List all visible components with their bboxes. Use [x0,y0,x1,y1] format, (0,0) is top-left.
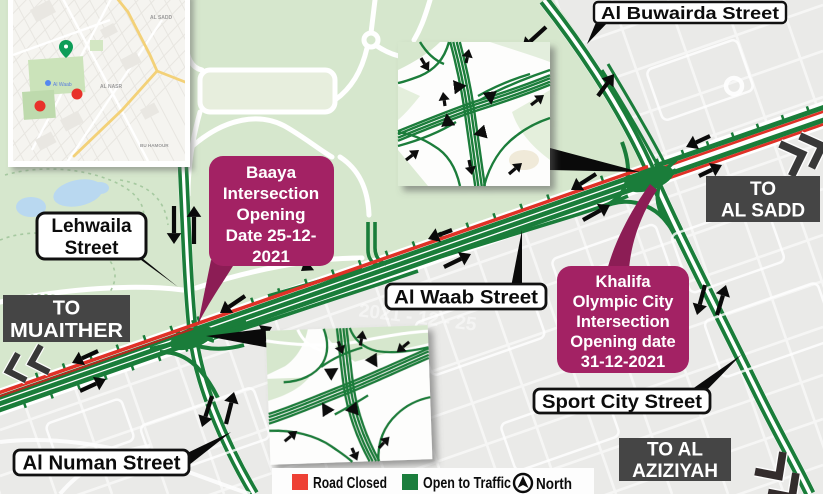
svg-text:Lehwaila: Lehwaila [51,216,132,237]
svg-text:Opening: Opening [237,205,306,224]
svg-text:MUAITHER: MUAITHER [10,320,124,342]
svg-text:AZIZIYAH: AZIZIYAH [632,461,718,482]
svg-text:Al Numan Street: Al Numan Street [23,453,181,475]
svg-text:Olympic City: Olympic City [573,293,675,311]
svg-text:BU HAMOUR: BU HAMOUR [140,143,169,148]
svg-text:Street: Street [65,238,120,259]
svg-text:Date 25-12-: Date 25-12- [226,226,317,245]
svg-text:TO AL: TO AL [647,440,703,461]
svg-text:31-12-2021: 31-12-2021 [581,353,665,371]
svg-text:AL SADD: AL SADD [721,201,805,222]
svg-text:Al Waab Street: Al Waab Street [394,287,539,308]
svg-text:Open to Traffic: Open to Traffic [423,475,511,492]
svg-text:Khalifa: Khalifa [595,273,651,291]
svg-text:Opening date: Opening date [570,333,675,351]
svg-text:2021: 2021 [252,247,290,266]
svg-text:AL SADD: AL SADD [150,15,173,21]
svg-text:North: North [536,476,572,493]
svg-text:Intersection: Intersection [223,184,319,203]
svg-text:Road Closed: Road Closed [313,475,387,492]
svg-text:Intersection: Intersection [576,313,670,331]
svg-text:TO: TO [53,298,80,320]
svg-text:Al Buwairda Street: Al Buwairda Street [601,3,779,23]
svg-text:Al Waab: Al Waab [53,82,72,88]
svg-text:Sport City Street: Sport City Street [542,392,703,413]
svg-text:AL NASR: AL NASR [100,84,123,90]
svg-text:Baaya: Baaya [246,163,297,182]
svg-text:TO: TO [750,179,776,200]
